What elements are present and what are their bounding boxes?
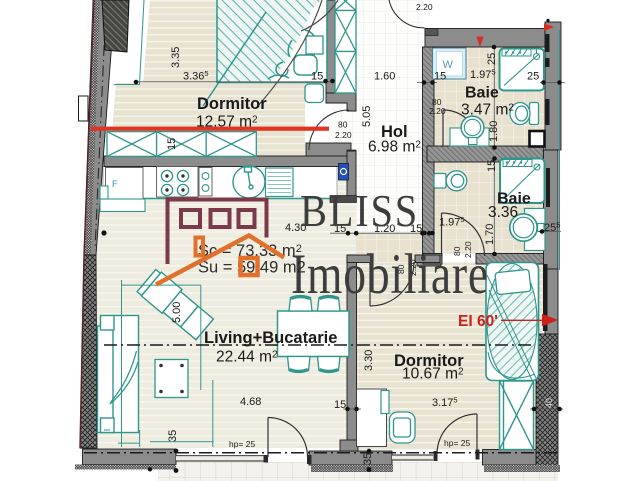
svg-text:3.36: 3.36: [488, 204, 518, 221]
svg-text:4.68: 4.68: [240, 396, 261, 408]
svg-text:2.20: 2.20: [335, 130, 352, 140]
svg-text:1.70: 1.70: [484, 224, 496, 245]
svg-text:15: 15: [166, 138, 178, 150]
svg-text:5.05: 5.05: [361, 106, 373, 127]
svg-text:15: 15: [334, 399, 346, 411]
svg-text:12.57 m2: 12.57 m2: [196, 114, 258, 131]
svg-text:40: 40: [544, 398, 554, 408]
svg-text:hp= 25: hp= 25: [229, 439, 256, 449]
svg-text:EI 60': EI 60': [458, 313, 498, 330]
svg-text:10.67 m2: 10.67 m2: [402, 366, 464, 383]
svg-text:5.00: 5.00: [171, 302, 183, 323]
svg-text:2.20: 2.20: [429, 106, 446, 116]
svg-text:Living+Bucatarie: Living+Bucatarie: [204, 329, 337, 347]
svg-text:35: 35: [362, 453, 374, 465]
svg-text:15: 15: [486, 160, 498, 172]
svg-text:1.80: 1.80: [488, 121, 500, 142]
svg-text:hp= 25: hp= 25: [444, 438, 471, 448]
svg-text:2.20: 2.20: [416, 2, 433, 12]
svg-text:3.30: 3.30: [363, 350, 375, 371]
svg-text:3.47 m2: 3.47 m2: [461, 102, 514, 119]
svg-text:3.35: 3.35: [170, 47, 182, 68]
svg-text:Baie: Baie: [465, 85, 499, 102]
svg-text:F: F: [112, 179, 118, 190]
svg-text:80: 80: [338, 120, 348, 130]
svg-text:25: 25: [486, 53, 498, 65]
svg-text:W: W: [443, 59, 454, 71]
svg-text:6.98 m2: 6.98 m2: [368, 139, 421, 156]
svg-text:25: 25: [527, 71, 539, 83]
svg-text:15: 15: [434, 71, 446, 83]
svg-text:35: 35: [167, 430, 179, 442]
svg-text:22.44 m2: 22.44 m2: [216, 349, 278, 366]
svg-text:15: 15: [311, 71, 323, 83]
svg-text:Imobiliare: Imobiliare: [291, 243, 489, 306]
svg-text:Dormitor: Dormitor: [197, 95, 267, 113]
svg-text:1.60: 1.60: [374, 71, 395, 83]
svg-text:BLISS: BLISS: [300, 186, 419, 237]
